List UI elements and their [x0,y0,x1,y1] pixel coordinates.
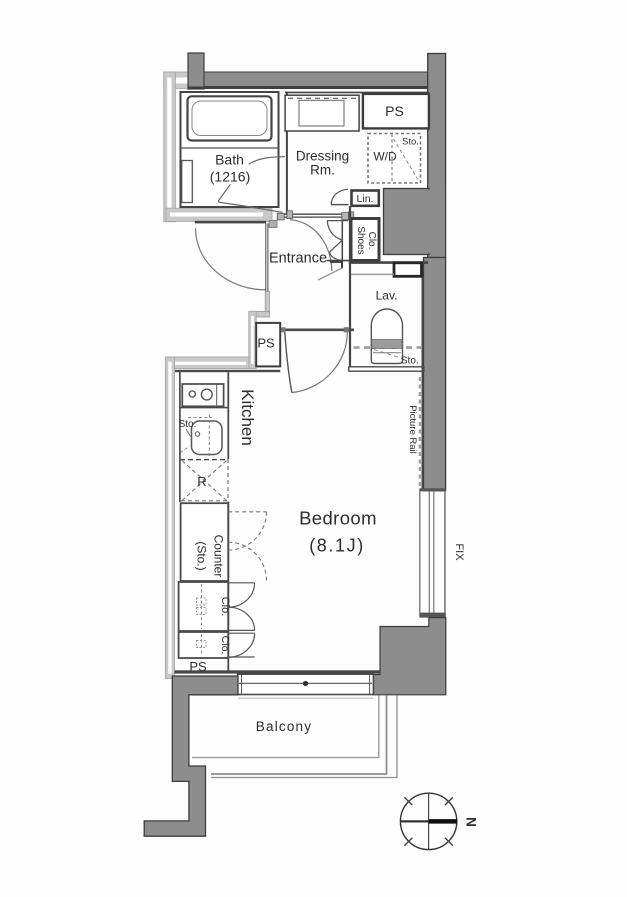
svg-text:Dressing: Dressing [296,149,349,164]
svg-text:(8.1J): (8.1J) [309,536,365,556]
svg-text:Counter: Counter [212,535,226,578]
svg-text:Sto.: Sto. [179,419,197,430]
svg-text:Balcony: Balcony [256,719,312,734]
svg-text:FIX: FIX [453,543,465,561]
svg-text:Rm.: Rm. [310,163,335,178]
svg-text:Sto.: Sto. [401,356,419,367]
svg-text:Entrance: Entrance [269,251,327,267]
svg-text:(1216): (1216) [210,169,250,185]
svg-text:Clo.: Clo. [219,597,231,617]
svg-text:(Sto.): (Sto.) [195,541,209,570]
svg-text:N: N [464,817,479,827]
svg-text:Clo.: Clo. [219,636,231,655]
svg-text:R: R [197,474,206,489]
svg-text:Lin.: Lin. [357,193,374,205]
svg-text:Bath: Bath [215,152,244,168]
svg-text:W/D: W/D [373,150,397,164]
svg-text:Kitchen: Kitchen [238,389,257,446]
svg-text:Picture Rail: Picture Rail [407,405,418,454]
svg-text:Bedroom: Bedroom [299,508,377,529]
svg-text:PS: PS [385,103,404,119]
svg-text:Lav.: Lav. [376,289,398,303]
svg-text:Shoes: Shoes [355,226,366,254]
svg-text:Clo.: Clo. [366,232,377,250]
svg-text:Sto.: Sto. [402,137,419,148]
svg-text:PS: PS [257,336,275,351]
